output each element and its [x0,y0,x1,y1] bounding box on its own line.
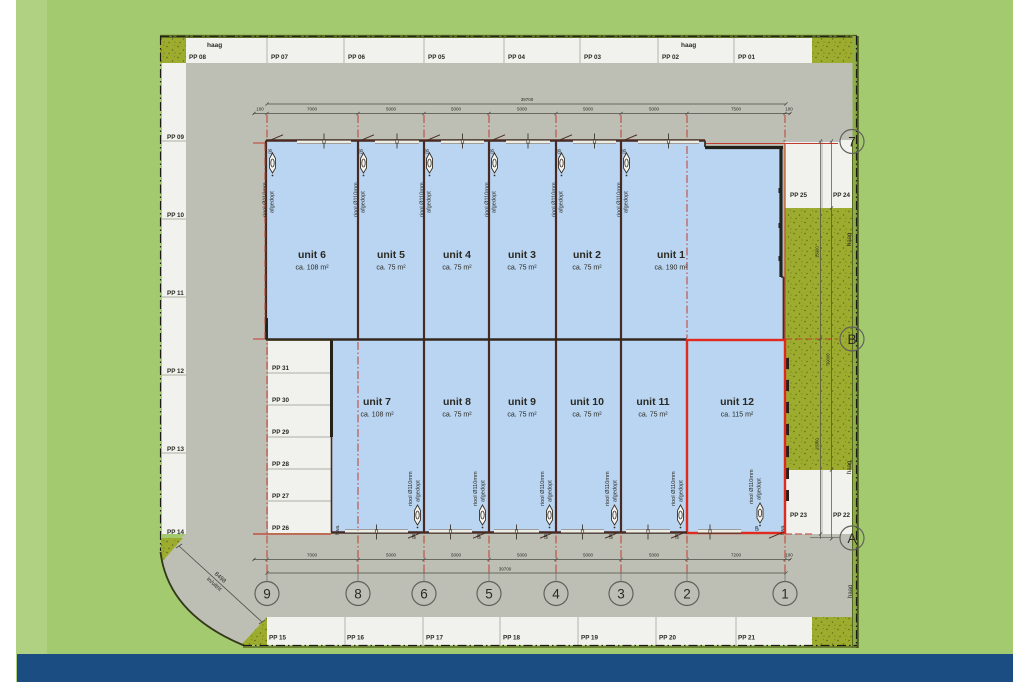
svg-text:8: 8 [354,586,362,601]
svg-text:unit 6: unit 6 [298,249,326,261]
svg-text:PP 23: PP 23 [790,512,808,519]
svg-text:PP 14: PP 14 [167,529,185,536]
svg-text:gs: gs [754,525,760,531]
svg-text:PP 29: PP 29 [272,429,290,436]
svg-text:ca. 75 m²: ca. 75 m² [376,265,406,272]
svg-text:A: A [847,531,856,546]
svg-text:gs: gs [411,533,417,539]
svg-text:39700: 39700 [521,97,534,102]
svg-text:PP 02: PP 02 [662,54,680,61]
svg-text:afgedopt: afgedopt [481,480,487,502]
svg-text:afgedopt: afgedopt [492,191,498,213]
svg-text:unit 10: unit 10 [570,396,604,408]
svg-text:15000: 15000 [815,246,820,258]
svg-text:unit 4: unit 4 [443,249,471,261]
svg-text:ca. 75 m²: ca. 75 m² [638,412,668,419]
svg-text:unit 3: unit 3 [508,249,536,261]
svg-text:5000: 5000 [583,553,594,558]
svg-text:PP 09: PP 09 [167,134,185,141]
svg-text:5000: 5000 [649,553,660,558]
svg-text:30000: 30000 [826,353,831,365]
svg-text:1: 1 [781,586,789,601]
svg-text:PP 18: PP 18 [503,635,521,642]
svg-text:riool Ø110mm: riool Ø110mm [485,182,491,217]
svg-text:afgedopt: afgedopt [416,480,422,502]
svg-text:PP 11: PP 11 [167,290,184,297]
svg-text:ca. 75 m²: ca. 75 m² [572,412,602,419]
svg-text:riool Ø110mm: riool Ø110mm [354,182,360,217]
svg-text:6: 6 [420,586,428,601]
svg-text:gs: gs [674,533,680,539]
svg-text:unit 7: unit 7 [363,396,391,408]
svg-text:5: 5 [485,586,493,601]
svg-text:riool Ø110mm: riool Ø110mm [420,182,426,217]
svg-text:PP 04: PP 04 [508,54,526,61]
svg-text:riool Ø110mm: riool Ø110mm [473,471,479,506]
svg-text:PP 16: PP 16 [347,635,365,642]
svg-text:5000: 5000 [451,553,462,558]
svg-text:5000: 5000 [386,553,397,558]
svg-text:afgedopt: afgedopt [559,191,565,213]
svg-text:riool Ø110mm: riool Ø110mm [605,471,611,506]
svg-text:unit 2: unit 2 [573,249,601,261]
svg-text:hwa.: hwa. [335,524,341,535]
svg-text:2: 2 [683,586,691,601]
svg-text:ca. 75 m²: ca. 75 m² [507,412,537,419]
svg-text:gs: gs [268,148,274,154]
svg-text:afgedopt: afgedopt [679,480,685,502]
svg-text:PP 07: PP 07 [271,54,289,61]
svg-text:PP 15: PP 15 [269,635,287,642]
svg-text:ca. 108 m²: ca. 108 m² [360,412,394,419]
svg-text:afgedopt: afgedopt [361,191,367,213]
svg-text:39700: 39700 [499,567,512,572]
svg-text:afgedopt: afgedopt [613,480,619,502]
svg-text:5000: 5000 [517,107,528,112]
svg-text:PP 13: PP 13 [167,446,185,453]
svg-text:haag: haag [681,42,696,49]
svg-text:7500: 7500 [731,107,742,112]
svg-text:afgedopt: afgedopt [624,191,630,213]
svg-text:unit 8: unit 8 [443,396,471,408]
svg-text:100: 100 [785,553,793,558]
svg-text:unit 12: unit 12 [720,396,754,408]
svg-text:5000: 5000 [649,107,660,112]
svg-text:ca. 75 m²: ca. 75 m² [442,265,472,272]
svg-text:PP 03: PP 03 [584,54,602,61]
svg-text:PP 24: PP 24 [833,192,851,199]
svg-text:ca. 75 m²: ca. 75 m² [507,265,537,272]
svg-text:afgedopt: afgedopt [548,480,554,502]
svg-text:5000: 5000 [517,553,528,558]
svg-text:7: 7 [848,134,856,149]
svg-text:gs: gs [425,148,431,154]
svg-text:PP 17: PP 17 [426,635,444,642]
svg-text:afgedopt: afgedopt [427,191,433,213]
svg-text:unit 1: unit 1 [657,249,685,261]
svg-text:gs: gs [476,533,482,539]
svg-text:gs: gs [359,148,365,154]
svg-text:ca. 75 m²: ca. 75 m² [442,412,472,419]
svg-text:gs: gs [622,148,628,154]
svg-text:unit 5: unit 5 [377,249,405,261]
svg-text:100: 100 [785,107,793,112]
svg-text:PP 05: PP 05 [428,54,446,61]
svg-text:riool Ø110mm: riool Ø110mm [749,469,755,504]
svg-text:gs: gs [543,533,549,539]
svg-text:riool Ø110mm: riool Ø110mm [263,182,269,217]
svg-text:15000: 15000 [815,438,820,450]
svg-text:4: 4 [552,586,560,601]
svg-text:riool Ø110mm: riool Ø110mm [617,182,623,217]
svg-text:7000: 7000 [307,553,318,558]
svg-text:ca. 75 m²: ca. 75 m² [572,265,602,272]
svg-text:afgedopt: afgedopt [270,191,276,213]
svg-text:PP 26: PP 26 [272,525,290,532]
svg-text:PP 12: PP 12 [167,368,185,375]
svg-text:PP 08: PP 08 [189,54,207,61]
svg-text:gs: gs [490,148,496,154]
svg-text:5000: 5000 [451,107,462,112]
svg-text:PP 19: PP 19 [581,635,599,642]
svg-text:100: 100 [256,107,264,112]
svg-text:riool Ø110mm: riool Ø110mm [671,471,677,506]
svg-text:B: B [847,332,856,347]
svg-text:5000: 5000 [583,107,594,112]
svg-text:riool Ø110mm: riool Ø110mm [540,471,546,506]
svg-text:ca. 108 m²: ca. 108 m² [295,265,329,272]
svg-text:PP 20: PP 20 [659,635,677,642]
svg-text:ca. 190 m²: ca. 190 m² [654,265,688,272]
svg-text:PP 10: PP 10 [167,212,185,219]
svg-text:gs: gs [608,533,614,539]
svg-text:PP 30: PP 30 [272,397,290,404]
svg-text:hwa.: hwa. [780,524,786,535]
svg-text:unit 11: unit 11 [636,396,669,408]
svg-text:unit 9: unit 9 [508,396,536,408]
svg-text:afgedopt: afgedopt [757,478,763,500]
svg-text:PP 21: PP 21 [738,635,756,642]
svg-text:PP 22: PP 22 [833,512,851,519]
svg-text:7200: 7200 [731,553,742,558]
svg-text:9: 9 [263,586,271,601]
svg-text:PP 06: PP 06 [348,54,366,61]
svg-text:gs: gs [557,148,563,154]
svg-text:PP 01: PP 01 [738,54,756,61]
svg-text:PP 31: PP 31 [272,365,290,372]
svg-text:riool Ø110mm: riool Ø110mm [408,471,414,506]
svg-text:haag: haag [207,42,222,49]
svg-text:5000: 5000 [386,107,397,112]
svg-text:7000: 7000 [307,107,318,112]
svg-text:3: 3 [617,586,625,601]
svg-text:PP 25: PP 25 [790,192,808,199]
svg-text:ca. 115 m²: ca. 115 m² [721,412,754,419]
svg-text:PP 27: PP 27 [272,493,290,500]
svg-text:riool Ø110mm: riool Ø110mm [552,182,558,217]
svg-text:PP 28: PP 28 [272,461,290,468]
